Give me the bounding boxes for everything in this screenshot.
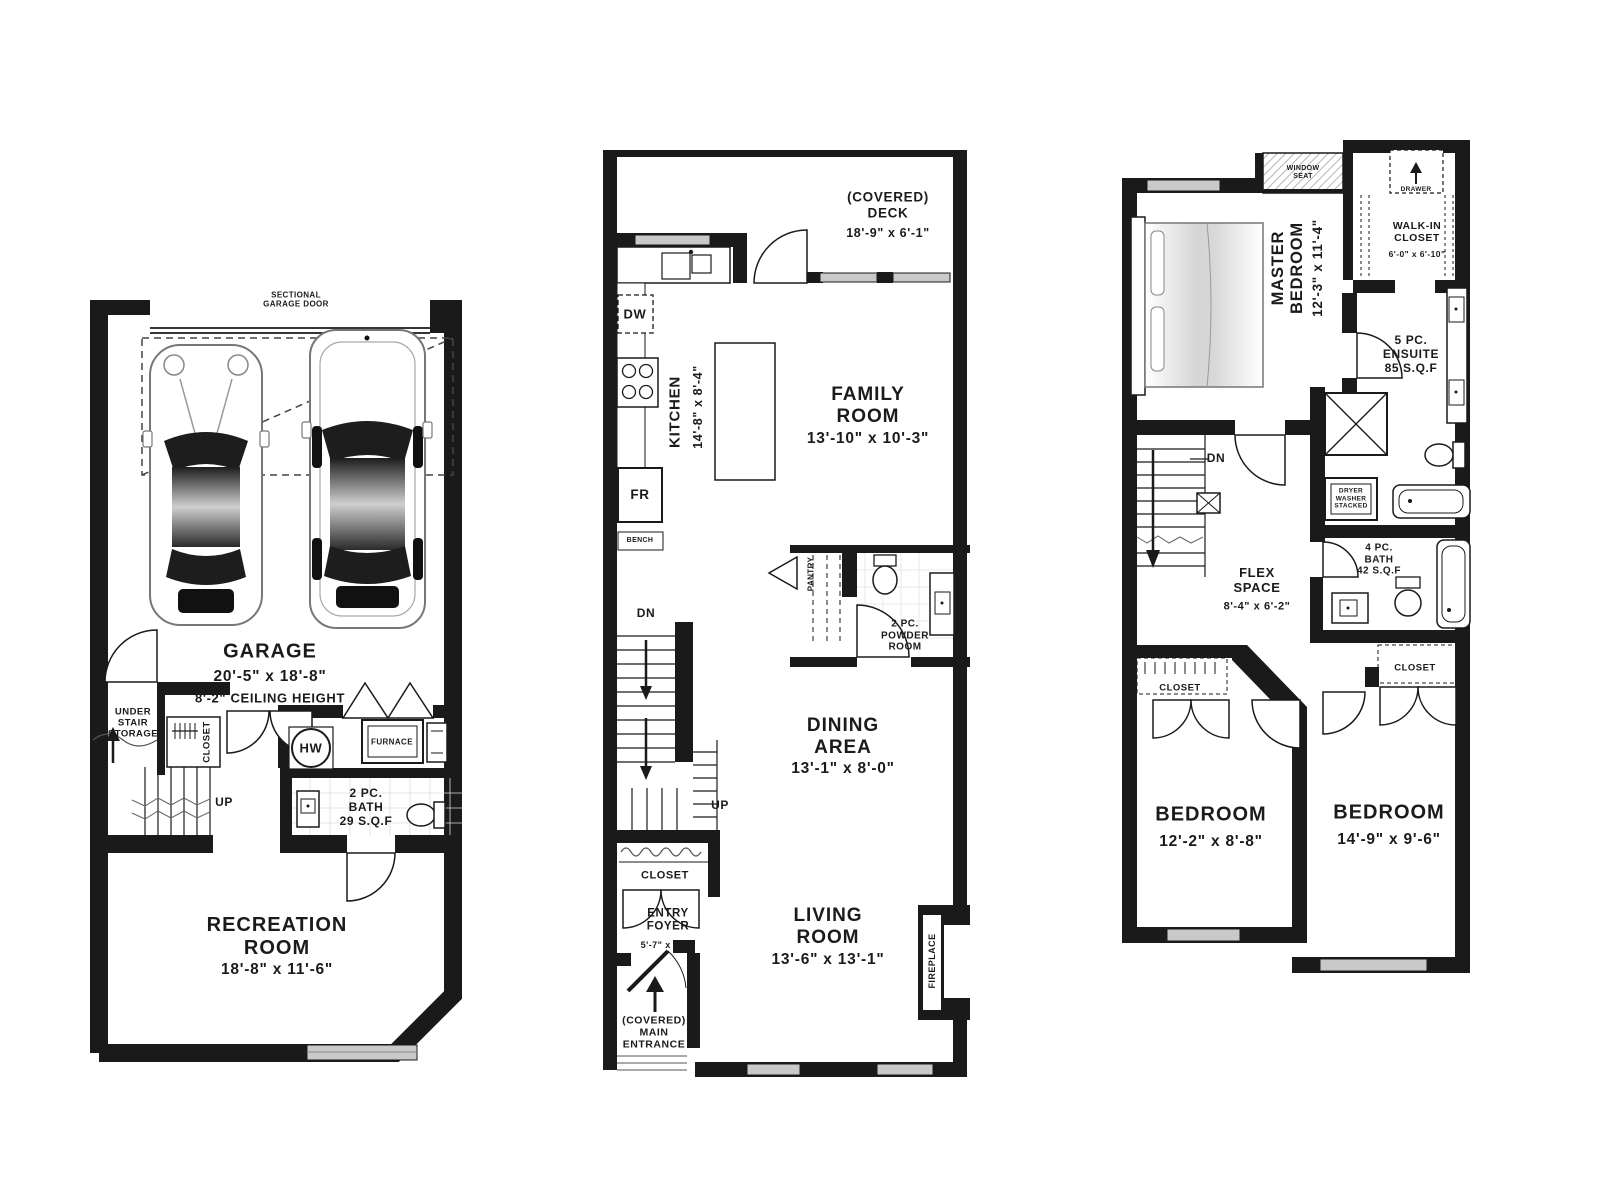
window-seat-label: WINDOW SEAT [1287, 165, 1320, 181]
garage-ceiling-note: 8'-2" CEILING HEIGHT [195, 690, 345, 705]
walk-in-closet-dims: 6'-0" x 6'-10" [1389, 250, 1446, 260]
floor-plan-sheet: SECTIONAL GARAGE DOOR GARAGE 20'-5" x 18… [0, 0, 1600, 1200]
walk-in-closet-label: WALK-IN CLOSET [1393, 220, 1442, 244]
dishwasher-label: DW [624, 306, 647, 321]
door-swing [1153, 700, 1191, 738]
living-room-label: LIVING ROOM [793, 905, 862, 949]
family-room-dims: 13'-10" x 10'-3" [807, 430, 929, 448]
porch-steps [617, 1056, 687, 1070]
sink-icon [930, 573, 954, 635]
sink-icon [297, 791, 319, 827]
dining-area-dims: 13'-1" x 8'-0" [791, 760, 895, 778]
under-stair-storage-label: UNDER STAIR STORAGE [108, 706, 158, 739]
upper-dn-label: DN [1207, 452, 1226, 466]
door-swing [1323, 542, 1358, 577]
garage-room-dims: 20'-5" x 18'-8" [214, 668, 327, 686]
master-bedroom-dims: 12'-3" x 11'-4" [1310, 219, 1326, 317]
upper-bath-label: 4 PC. BATH 42 S.Q.F [1357, 543, 1401, 578]
bed-icon [1131, 217, 1263, 395]
door-swing [1252, 700, 1300, 748]
drawer-label: DRAWER [1401, 186, 1432, 194]
main-closet-label: CLOSET [641, 870, 689, 883]
deck-dims: 18'-9" x 6'-1" [846, 226, 930, 241]
garage-room-label: GARAGE [223, 640, 317, 663]
entry-foyer-dims: 5'-7" x 5'-3" [641, 940, 696, 950]
sink-icon [1332, 593, 1368, 623]
bathtub-icon [1437, 540, 1470, 628]
pantry-shelves [813, 555, 840, 643]
main-up-label: UP [711, 799, 729, 813]
recreation-room-dims: 18'-8" x 11'-6" [221, 961, 333, 979]
bedroom-right-dims: 14'-9" x 9'-6" [1337, 831, 1441, 849]
door-swing [754, 230, 807, 283]
main-entrance-label: (COVERED) MAIN ENTRANCE [622, 1015, 686, 1052]
toilet-icon [407, 802, 445, 828]
utility-unit-icon [427, 723, 447, 762]
door-swing [1418, 687, 1456, 725]
deck-label: (COVERED) DECK [847, 189, 929, 220]
shower-icon [1325, 393, 1387, 455]
basement-closet-label: CLOSET [201, 721, 212, 762]
living-room-dims: 13'-6" x 13'-1" [772, 951, 885, 969]
bathtub-icon [1393, 485, 1470, 518]
family-room-label: FAMILY ROOM [831, 384, 905, 428]
powder-room-label: 2 PC. POWDER ROOM [881, 619, 929, 654]
garage-door-label: SECTIONAL GARAGE DOOR [263, 291, 329, 310]
door-swing [388, 683, 433, 718]
fireplace-label: FIREPLACE [927, 933, 937, 988]
door-swing [1235, 435, 1285, 485]
flex-space-dims: 8'-4" x 6'-2" [1224, 601, 1291, 614]
door-swing [1191, 700, 1229, 738]
toilet-icon [873, 555, 897, 594]
hot-water-label: HW [300, 740, 323, 755]
upper-closet-right-label: CLOSET [1394, 662, 1435, 673]
toilet-icon [1395, 577, 1421, 616]
door-swing [105, 630, 157, 682]
bedroom-left-dims: 12'-2" x 8'-8" [1159, 833, 1263, 851]
door-swing [1323, 692, 1365, 734]
double-vanity-icon [1447, 288, 1467, 423]
main-dn-label: DN [637, 607, 656, 621]
kitchen-island [715, 343, 775, 480]
basement-up-label: UP [215, 796, 233, 810]
main-walls [603, 150, 970, 1077]
dining-area-label: DINING AREA [807, 715, 879, 759]
door-swing [347, 853, 395, 901]
laundry-label: DRYER WASHER STACKED [1334, 488, 1367, 511]
recreation-room-label: RECREATION ROOM [207, 914, 348, 960]
basement-bath-label: 2 PC. BATH 29 S.Q.F [340, 787, 393, 829]
car-icon [302, 330, 432, 628]
kitchen-sink-icon [617, 247, 730, 283]
kitchen-dims: 14'-8" x 8'-4" [691, 365, 706, 449]
car-icon [143, 345, 269, 625]
door-swing [227, 711, 269, 753]
upper-closet-left-label: CLOSET [1159, 682, 1200, 693]
kitchen-label: KITCHEN [666, 376, 683, 448]
door-swing [1380, 687, 1418, 725]
ensuite-label: 5 PC. ENSUITE 85 S.Q.F [1383, 334, 1439, 376]
stairs-icon [617, 636, 717, 830]
furnace-label: FURNACE [371, 737, 413, 746]
door-swing [769, 557, 797, 589]
bedroom-right-label: BEDROOM [1333, 801, 1444, 824]
master-bedroom-label: MASTER BEDROOM [1269, 222, 1307, 314]
closet-rod-icon [619, 848, 711, 862]
stove-icon [617, 358, 658, 407]
fridge-label: FR [630, 487, 649, 503]
flex-space-label: FLEX SPACE [1233, 565, 1280, 595]
pantry-label: PANTRY [806, 557, 815, 591]
entry-door [628, 951, 668, 991]
window-icon [307, 1045, 417, 1060]
entry-foyer-label: ENTRY FOYER [647, 908, 690, 935]
bench-label: BENCH [627, 537, 654, 545]
bedroom-left-label: BEDROOM [1155, 803, 1266, 826]
toilet-icon [1425, 442, 1465, 468]
door-swing [343, 683, 388, 718]
